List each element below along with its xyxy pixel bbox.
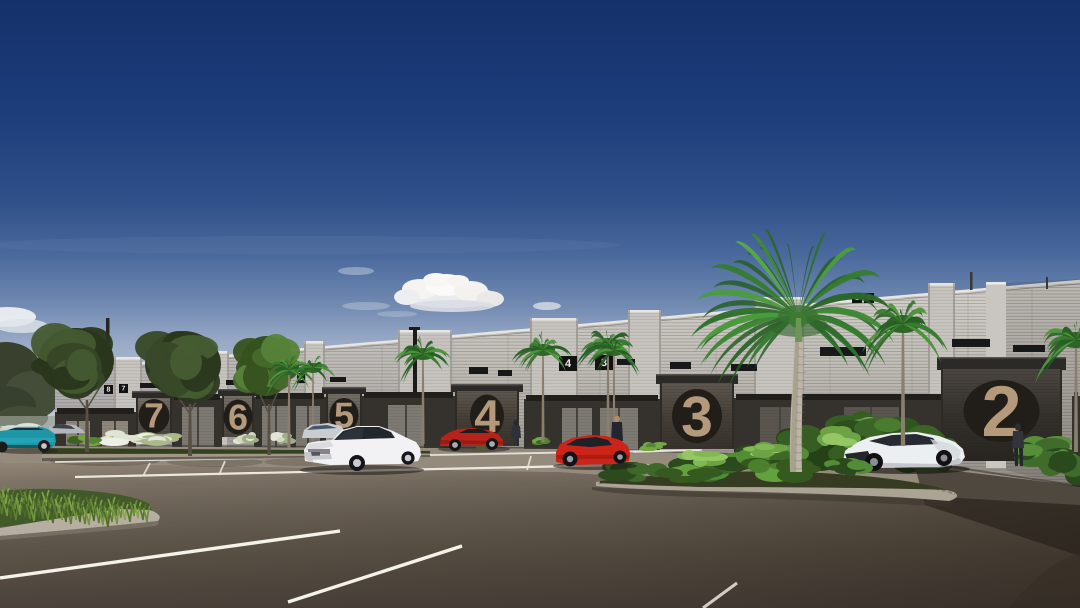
svg-text:8: 8 xyxy=(107,387,111,394)
svg-text:7: 7 xyxy=(122,386,126,393)
svg-text:4: 4 xyxy=(565,358,572,370)
svg-text:6: 6 xyxy=(228,397,248,438)
svg-text:7: 7 xyxy=(144,397,163,436)
svg-text:3: 3 xyxy=(681,385,713,449)
